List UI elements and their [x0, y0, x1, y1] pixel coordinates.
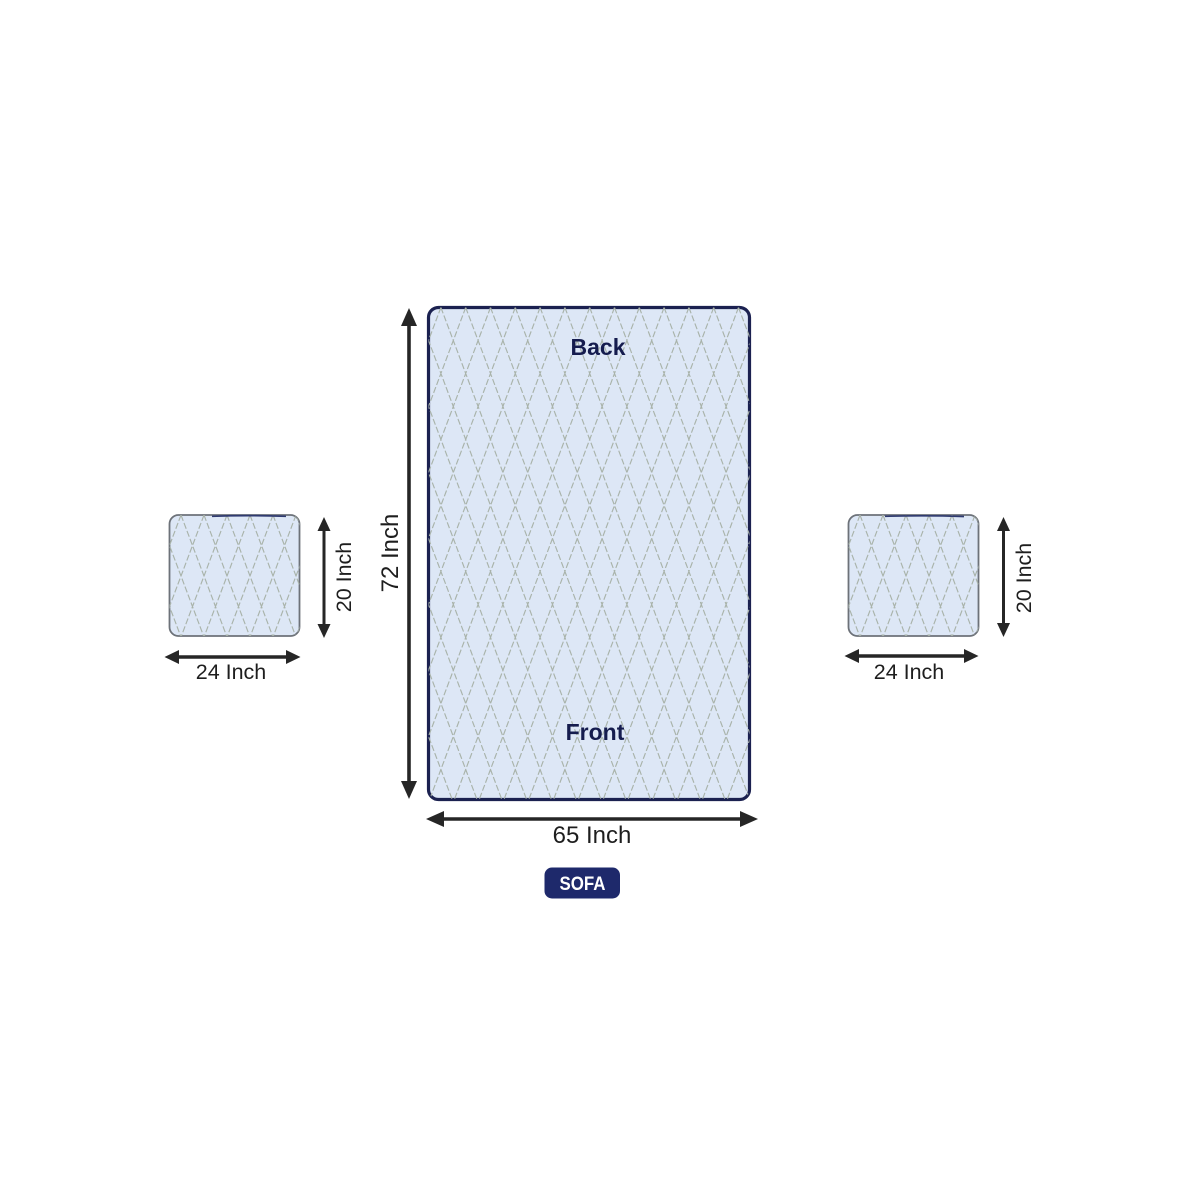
- svg-text:24 Inch: 24 Inch: [874, 660, 945, 684]
- svg-text:72 Inch: 72 Inch: [377, 514, 404, 593]
- svg-text:Front: Front: [566, 719, 625, 745]
- svg-text:SOFA: SOFA: [560, 874, 606, 895]
- svg-text:20 Inch: 20 Inch: [332, 542, 356, 613]
- svg-text:65 Inch: 65 Inch: [553, 822, 632, 849]
- svg-text:20 Inch: 20 Inch: [1012, 543, 1036, 614]
- svg-text:24 Inch: 24 Inch: [196, 660, 267, 684]
- svg-text:Back: Back: [571, 334, 626, 360]
